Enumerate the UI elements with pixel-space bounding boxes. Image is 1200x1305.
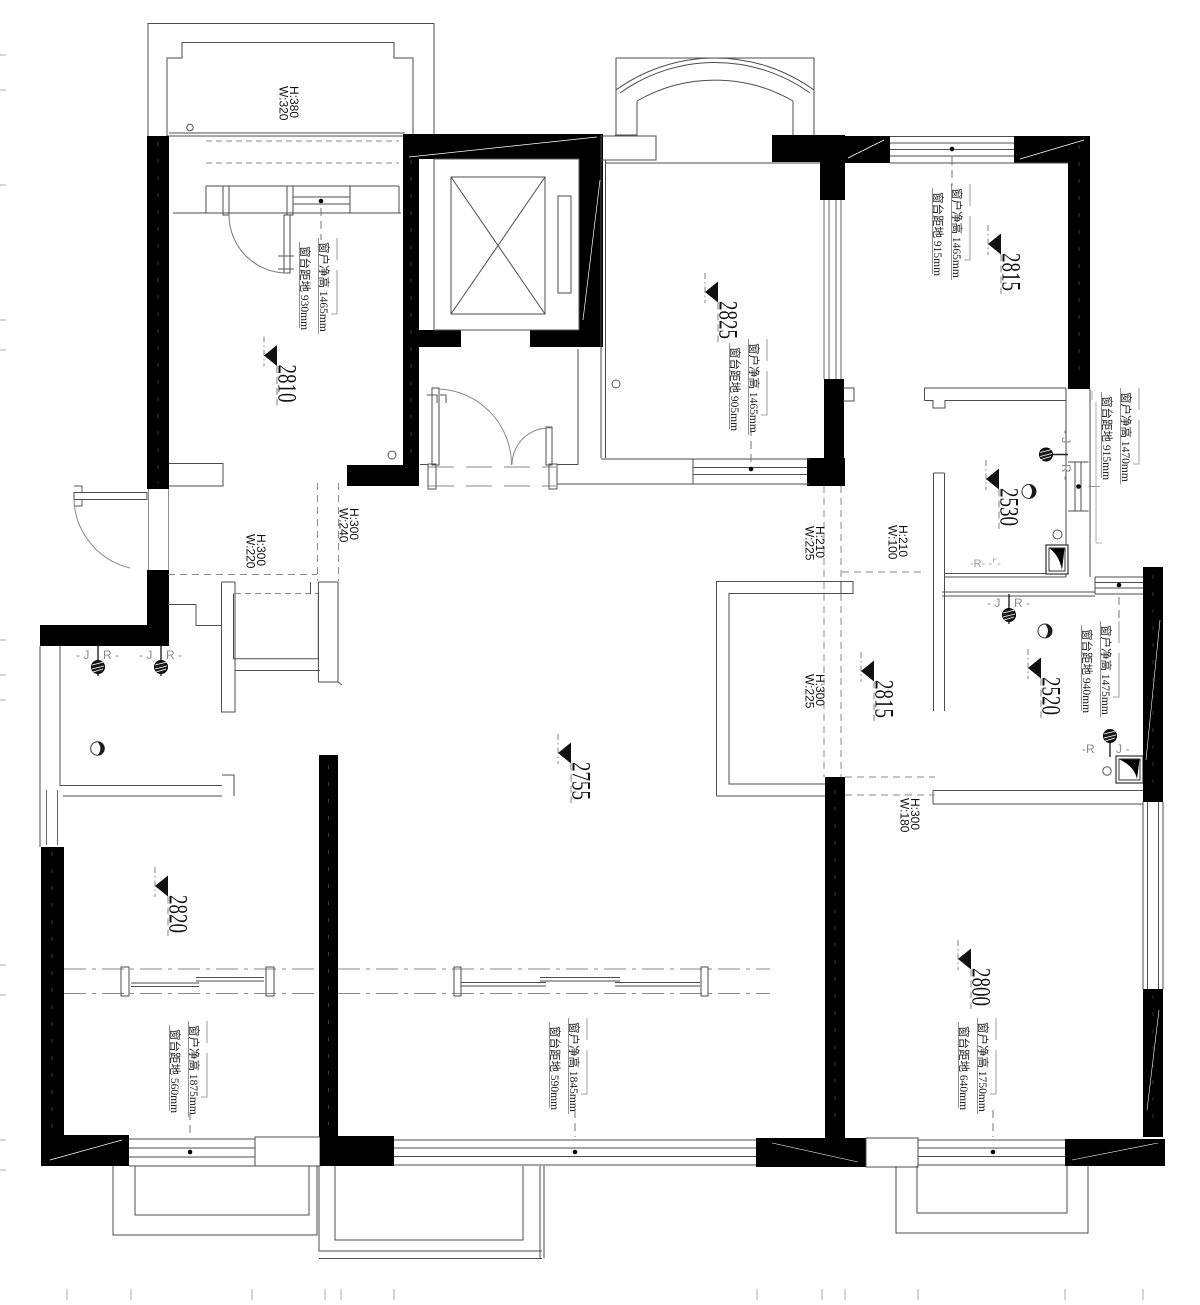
svg-text:2820: 2820 (164, 895, 193, 933)
svg-text:H:300W:220: H:300W:220 (244, 534, 269, 569)
svg-text:2825: 2825 (714, 301, 743, 339)
svg-text:J -: J - (1116, 742, 1129, 756)
svg-text:2815: 2815 (870, 680, 899, 718)
svg-text:2520: 2520 (1037, 677, 1066, 715)
svg-text:窗台距地 560mm: 窗台距地 560mm (168, 1029, 182, 1113)
svg-text:H:300W:225: H:300W:225 (803, 674, 828, 709)
svg-text:2815: 2815 (997, 253, 1026, 291)
svg-text:R -: R - (166, 648, 182, 662)
svg-text:窗台距地 930mm: 窗台距地 930mm (298, 246, 312, 330)
svg-text:H:210W:100: H:210W:100 (886, 525, 911, 560)
svg-text:H:380W:320: H:380W:320 (277, 86, 302, 121)
svg-text:窗户净高 1465mm: 窗户净高 1465mm (317, 242, 331, 332)
svg-text:窗户净高 1470mm: 窗户净高 1470mm (1119, 392, 1133, 482)
svg-text:R -: R - (1059, 464, 1073, 480)
svg-text:H:300W:240: H:300W:240 (337, 508, 362, 543)
svg-text:窗户净高 1750mm: 窗户净高 1750mm (976, 1022, 990, 1112)
svg-text:窗户净高 1845mm: 窗户净高 1845mm (567, 1022, 581, 1112)
svg-text:R -: R - (1014, 596, 1030, 610)
svg-text:-R: -R (1082, 742, 1095, 756)
svg-text:窗台距地 640mm: 窗台距地 640mm (957, 1026, 971, 1110)
svg-text:H:300W:180: H:300W:180 (898, 798, 923, 833)
svg-text:窗户净高 1875mm: 窗户净高 1875mm (187, 1025, 201, 1115)
svg-text:H:210W:225: H:210W:225 (803, 526, 828, 561)
svg-text:- J: - J (76, 648, 89, 662)
svg-text:- J: - J (1059, 430, 1073, 443)
svg-text:窗户净高 1465mm: 窗户净高 1465mm (747, 343, 761, 433)
svg-text:- J: - J (987, 596, 1000, 610)
svg-text:窗台距地 590mm: 窗台距地 590mm (548, 1026, 562, 1110)
svg-text:窗台距地 915mm: 窗台距地 915mm (1100, 396, 1114, 480)
svg-text:2530: 2530 (995, 488, 1024, 526)
svg-text:窗台距地 905mm: 窗台距地 905mm (728, 347, 742, 431)
svg-text:窗台距地 915mm: 窗台距地 915mm (931, 192, 945, 276)
svg-text:2755: 2755 (567, 762, 596, 800)
svg-text:- J: - J (139, 648, 152, 662)
svg-text:窗户净高 1465mm: 窗户净高 1465mm (950, 188, 964, 278)
svg-text:-R- -⌜-: -R- -⌜- (970, 558, 1001, 570)
svg-text:窗台距地 940mm: 窗台距地 940mm (1080, 629, 1094, 713)
svg-text:窗户净高 1475mm: 窗户净高 1475mm (1099, 625, 1113, 715)
svg-text:2810: 2810 (273, 365, 302, 403)
svg-text:R -: R - (103, 648, 119, 662)
svg-text:2800: 2800 (967, 968, 996, 1006)
